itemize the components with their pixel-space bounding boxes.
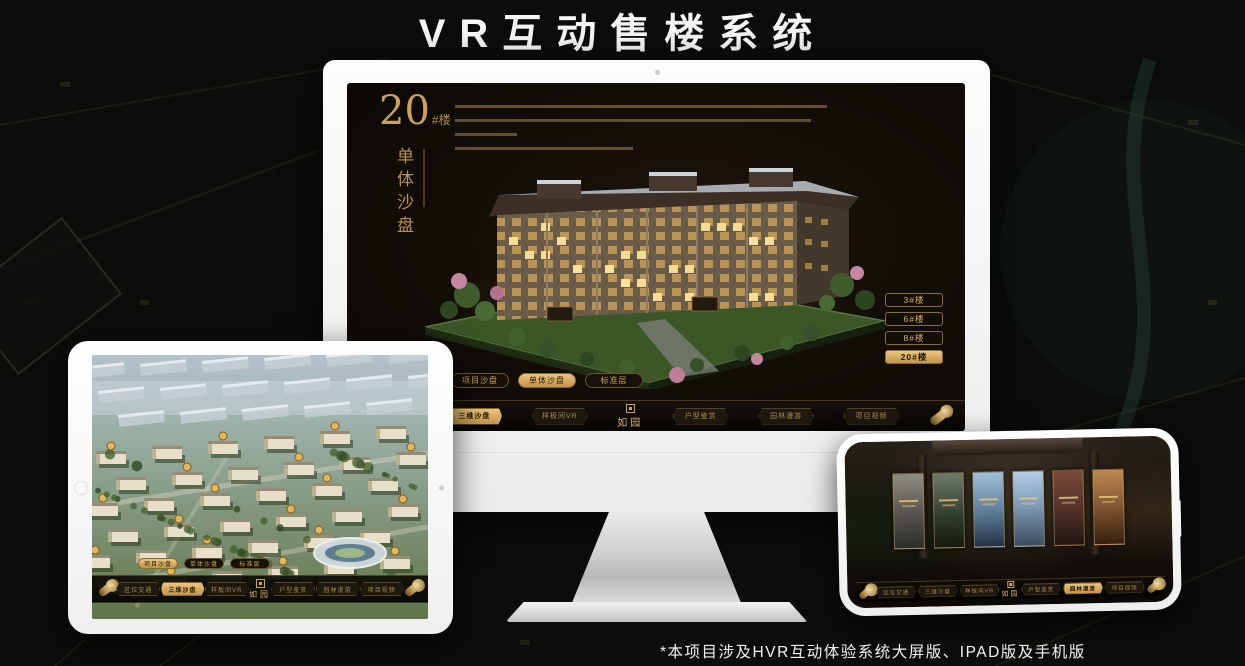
phone-navbar: 区位交通 三维沙盘 样板间VR 如园 户型鉴赏 园林漫游 项目视频 — [855, 576, 1165, 602]
gallery-panel-caption — [979, 498, 998, 500]
promo-canvas: VR互动售楼系统 20#楼 单体沙盘 — [0, 0, 1245, 666]
sandbox-tab-group: 项目沙盘 单体沙盘 标准层 — [451, 373, 643, 388]
nav-item-showroom-vr[interactable]: 样板间VR — [205, 582, 249, 596]
nav-item-floorplan[interactable]: 户型鉴赏 — [1021, 582, 1061, 595]
brand-logo: 如园 — [1001, 580, 1019, 598]
gallery-panel-caption — [939, 499, 958, 501]
gallery-panel-caption — [899, 500, 918, 502]
nav-item-floorplan[interactable]: 户型鉴赏 — [271, 582, 315, 596]
nav-item-3d-sandbox[interactable]: 三维沙盘 — [918, 585, 958, 598]
floor-button-group: 3#楼 6#楼 8#楼 20#楼 — [885, 293, 943, 364]
tablet-device: 项目沙盘 单体沙盘 标准层 区位交通 三维沙盘 样板间VR 如园 户型鉴赏 园林… — [68, 341, 453, 634]
gallery-panel-caption — [1059, 497, 1078, 499]
scroll-handle-icon[interactable] — [1146, 579, 1163, 595]
gallery-panel[interactable] — [1012, 470, 1045, 547]
camera-icon — [439, 485, 444, 490]
page-title: VR互动售楼系统 — [0, 1, 1245, 59]
building-3d-model[interactable] — [397, 145, 913, 389]
webcam-icon — [655, 70, 660, 75]
nav-item-garden-roam[interactable]: 园林漫游 — [758, 408, 814, 425]
ruyuan-seal-icon — [1007, 580, 1014, 587]
stadium — [314, 538, 386, 568]
nav-item-project-video[interactable]: 项目视频 — [1105, 581, 1145, 594]
gallery-panel[interactable] — [972, 471, 1005, 548]
nav-item-showroom-vr[interactable]: 样板间VR — [532, 408, 588, 425]
phone-screen: 区位交通 三维沙盘 样板间VR 如园 户型鉴赏 园林漫游 项目视频 — [844, 436, 1173, 609]
tablet-navbar: 区位交通 三维沙盘 样板间VR 如园 户型鉴赏 园林漫游 项目视频 — [92, 575, 428, 603]
tab-single-sandbox[interactable]: 单体沙盘 — [518, 373, 576, 388]
brand-logo: 如园 — [617, 404, 643, 429]
gallery-panel[interactable] — [932, 472, 965, 549]
tab-single-sandbox[interactable]: 单体沙盘 — [184, 558, 224, 569]
phone-device: 区位交通 三维沙盘 样板间VR 如园 户型鉴赏 园林漫游 项目视频 — [836, 427, 1182, 616]
tab-project-sandbox[interactable]: 项目沙盘 — [451, 373, 509, 388]
nav-item-3d-sandbox[interactable]: 三维沙盘 — [161, 582, 205, 596]
tab-standard-floor[interactable]: 标准层 — [230, 558, 270, 569]
nav-item-garden-roam[interactable]: 园林漫游 — [1063, 582, 1103, 595]
scroll-handle-icon[interactable] — [929, 406, 952, 427]
tablet-screen: 项目沙盘 单体沙盘 标准层 区位交通 三维沙盘 样板间VR 如园 户型鉴赏 园林… — [92, 355, 428, 619]
footnote-text: *本项目涉及HVR互动体验系统大屏版、IPAD版及手机版 — [660, 640, 1086, 662]
building-heading: 20#楼 — [379, 91, 451, 131]
nav-item-3d-sandbox[interactable]: 三维沙盘 — [446, 408, 502, 425]
home-button[interactable] — [74, 481, 88, 495]
tablet-tab-group: 项目沙盘 单体沙盘 标准层 — [138, 558, 270, 569]
building-number-suffix: #楼 — [432, 113, 451, 127]
nav-item-location[interactable]: 区位交通 — [116, 582, 160, 596]
scroll-handle-icon[interactable] — [858, 585, 875, 601]
floor-button-3[interactable]: 3#楼 — [885, 293, 943, 307]
nav-item-project-video[interactable]: 项目视频 — [360, 582, 404, 596]
gallery-panel[interactable] — [1052, 469, 1085, 546]
nav-item-location[interactable]: 区位交通 — [876, 585, 916, 598]
gallery-panel-caption — [1019, 497, 1038, 499]
scroll-handle-icon[interactable] — [97, 580, 116, 597]
gate-beam-decor — [932, 437, 1082, 455]
scroll-handle-icon[interactable] — [403, 580, 422, 597]
nav-item-project-video[interactable]: 项目视频 — [844, 408, 900, 425]
gallery-panel[interactable] — [892, 473, 925, 550]
floor-button-6[interactable]: 6#楼 — [885, 312, 943, 326]
nav-item-showroom-vr[interactable]: 样板间VR — [960, 584, 1000, 597]
floor-button-8[interactable]: 8#楼 — [885, 331, 943, 345]
monitor-stand-base — [506, 602, 808, 622]
tab-standard-floor[interactable]: 标准层 — [585, 373, 643, 388]
floor-button-20[interactable]: 20#楼 — [885, 350, 943, 364]
brand-logo: 如园 — [249, 579, 271, 600]
phone-notch — [1175, 500, 1182, 536]
tab-project-sandbox[interactable]: 项目沙盘 — [138, 558, 178, 569]
nav-item-garden-roam[interactable]: 园林漫游 — [316, 582, 360, 596]
ruyuan-seal-icon — [256, 579, 265, 588]
ruyuan-seal-icon — [626, 404, 635, 413]
gallery-panel[interactable] — [1092, 469, 1125, 546]
building-number: 20 — [379, 88, 430, 134]
gallery-panel-caption — [1099, 496, 1118, 498]
scene-gallery — [892, 469, 1125, 550]
nav-item-floorplan[interactable]: 户型鉴赏 — [673, 408, 729, 425]
